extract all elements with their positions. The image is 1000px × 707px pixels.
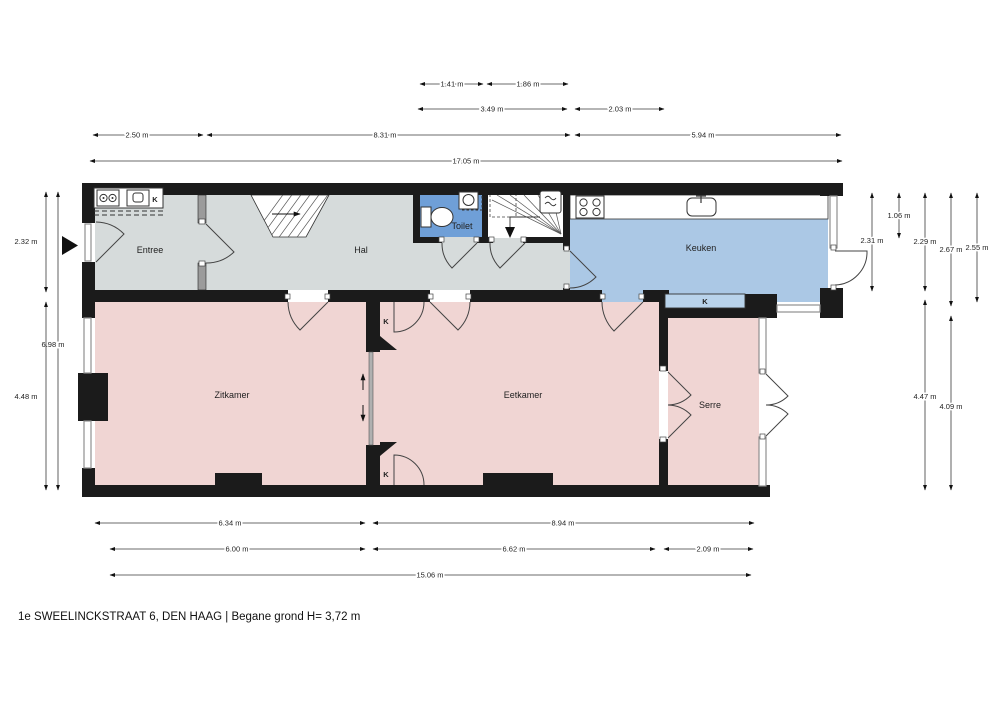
window-serre-1 [759,318,766,373]
floorplan-page: K K [0,0,1000,707]
door-keuken-exterior [835,251,867,285]
closet-bottom-label: K [383,470,389,479]
svg-text:17.05 m: 17.05 m [452,157,479,166]
dim: 6.34 m [95,519,365,528]
svg-text:5.94 m: 5.94 m [692,131,715,140]
svg-text:2.55 m: 2.55 m [966,243,989,252]
svg-text:3.49 m: 3.49 m [481,105,504,114]
nook-closet-label: K [152,195,158,204]
dim: 4.47 m [914,300,937,490]
dim: 3.49 m [418,105,567,114]
svg-text:6.00 m: 6.00 m [226,545,249,554]
window-keuken-rear [777,305,820,312]
floorplan-drawing: K K [0,0,1000,707]
dim: 6.98 m [42,192,65,490]
dim: 2.29 m [914,193,937,291]
dimensions-left: 2.32 m 6.98 m 4.48 m [15,192,65,490]
dimensions-top: 1.41 m 1.86 m 3.49 m 2.03 m 2.50 m 8.31 … [90,80,842,166]
appliance-nook: K [94,188,163,215]
zitkamer-label: Zitkamer [214,390,249,400]
dim: 2.03 m [575,105,664,114]
closet-top-label: K [383,317,389,326]
svg-text:1.06 m: 1.06 m [888,211,911,220]
plan-title: 1e SWEELINCKSTRAAT 6, DEN HAAG | Begane … [18,611,360,623]
dim: 17.05 m [90,157,842,166]
toilet-icon [421,207,453,227]
serre-label: Serre [699,400,721,410]
chimney-breast-left [78,373,108,421]
svg-text:6.98 m: 6.98 m [42,340,65,349]
washing-machine-icon [97,190,119,206]
svg-text:2.50 m: 2.50 m [126,131,149,140]
dim: 8.94 m [373,519,754,528]
dim: 4.48 m [15,302,46,490]
dim: 5.94 m [575,131,841,140]
dim: 6.00 m [110,545,365,554]
dim: 2.67 m [940,193,963,306]
svg-text:4.48 m: 4.48 m [15,392,38,401]
window-serre-2 [759,437,766,486]
front-door-frame [85,224,91,261]
svg-text:6.62 m: 6.62 m [503,545,526,554]
svg-text:2.32 m: 2.32 m [15,237,38,246]
svg-text:2.03 m: 2.03 m [609,105,632,114]
svg-text:1.41 m: 1.41 m [441,80,464,89]
cabinet-sink-icon [127,190,149,206]
keuken-label: Keuken [686,243,717,253]
room-floors [95,193,828,485]
dim: 1.06 m [888,193,911,238]
window-zitkamer-2 [84,421,91,468]
svg-text:4.47 m: 4.47 m [914,392,937,401]
dim: 1.86 m [487,80,568,89]
svg-text:8.31 m: 8.31 m [374,131,397,140]
toilet-label: Toilet [451,221,473,231]
hal-label: Hal [354,245,368,255]
dim: 2.09 m [664,545,753,554]
closet-wall-bottom [366,445,380,497]
chimney-breast-zitkamer [215,473,262,485]
window-zitkamer-1 [84,318,91,373]
double-door-serre-exterior-top [766,374,788,405]
dim: 15.06 m [110,571,751,580]
dim: 6.62 m [373,545,655,554]
keuken-closet-band: K [665,294,745,308]
svg-text:8.94 m: 8.94 m [552,519,575,528]
svg-text:4.09 m: 4.09 m [940,402,963,411]
dim: 2.50 m [93,131,203,140]
window-keuken-side [830,196,837,248]
dim: 2.32 m [15,192,46,292]
dim: 1.41 m [420,80,483,89]
svg-text:2.29 m: 2.29 m [914,237,937,246]
dimensions-right: 2.31 m 1.06 m 2.29 m 2.67 m 2.55 m 4.47 … [861,193,989,490]
dimensions-bottom: 6.34 m 8.94 m 6.00 m 6.62 m 2.09 m 15.06… [95,519,754,580]
dim: 4.09 m [940,316,963,490]
svg-text:2.31 m: 2.31 m [861,236,884,245]
sink-icon [687,195,716,216]
stove-icon [576,196,604,218]
boiler-icon [540,191,561,213]
keuken-closet-label: K [702,297,708,306]
svg-text:6.34 m: 6.34 m [219,519,242,528]
svg-text:2.09 m: 2.09 m [697,545,720,554]
closet-wall-top [366,290,380,352]
eetkamer-label: Eetkamer [504,390,543,400]
entree-label: Entree [137,245,164,255]
svg-text:2.67 m: 2.67 m [940,245,963,254]
svg-text:15.06 m: 15.06 m [416,571,443,580]
double-door-serre-exterior-bottom [766,405,788,436]
svg-text:1.86 m: 1.86 m [517,80,540,89]
dim: 2.55 m [966,193,989,302]
chimney-breast-eetkamer [483,473,553,485]
entrance-arrow-icon [62,236,78,255]
dim: 8.31 m [207,131,570,140]
dim: 2.31 m [861,193,884,291]
